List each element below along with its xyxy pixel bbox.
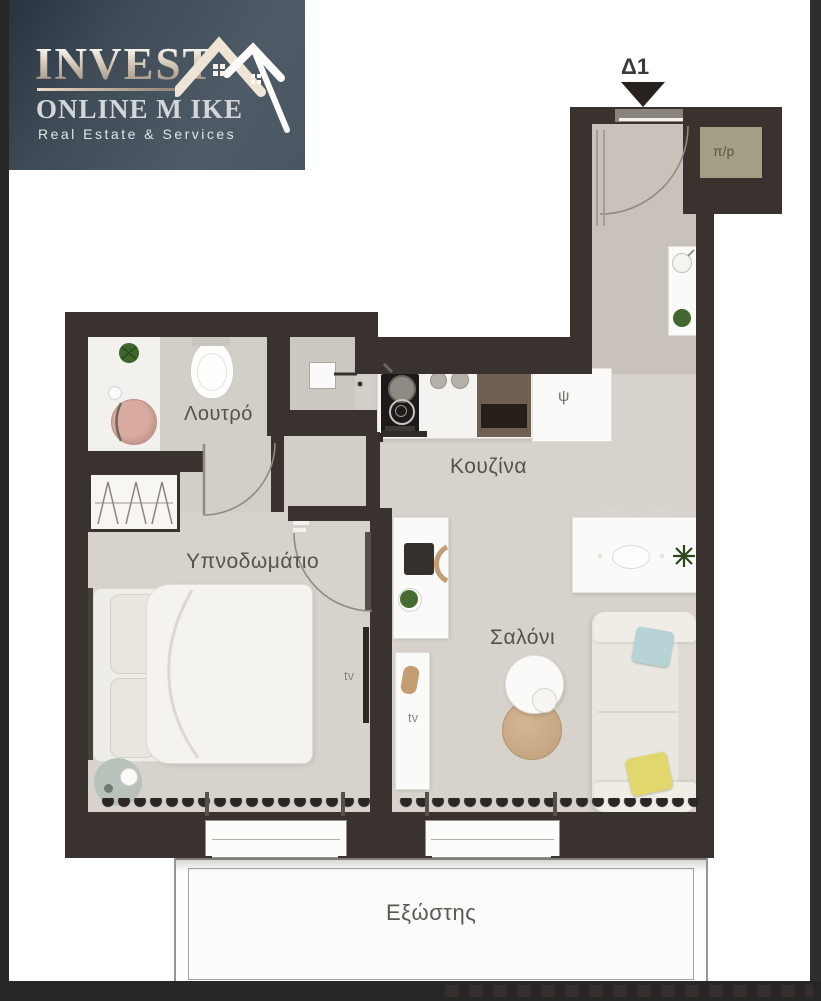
curtain-rod-end — [341, 792, 345, 816]
bedroom-tv-label: tv — [344, 668, 354, 683]
desk — [393, 517, 449, 639]
left-edge-strip — [0, 0, 9, 1001]
kitchen-label: Κουζίνα — [450, 455, 527, 479]
curtain-rod-end — [205, 792, 209, 816]
bedroom-label: Υπνοδωμάτιο — [186, 550, 319, 574]
wall-bottom-exterior — [65, 812, 714, 858]
living-room-label: Σαλόνι — [490, 626, 555, 650]
entrance-arrow-icon — [621, 82, 665, 107]
bedroom-door-jamb — [293, 528, 306, 532]
bedroom-door-jamb — [293, 521, 309, 525]
curtain-rod-end — [553, 792, 557, 816]
counter-handle-bar — [381, 431, 427, 437]
wall-hall-left — [570, 107, 592, 370]
right-edge-strip — [810, 0, 821, 1001]
bathroom-sink — [111, 399, 157, 445]
balcony-label: Εξώστης — [386, 900, 476, 926]
sofa-backrest — [678, 620, 696, 804]
toilet-bowl-inner — [197, 353, 227, 391]
wall-nook-top — [267, 410, 377, 436]
bedroom-tv — [363, 627, 369, 723]
hall-console-kettle — [672, 253, 692, 273]
logo-tagline: Real Estate & Services — [38, 126, 236, 142]
wall-nook-right — [366, 432, 380, 512]
laptop — [404, 543, 434, 575]
wardrobe — [88, 472, 180, 532]
soap-dish — [108, 386, 122, 400]
floor-plan-page: Λουτρό Κουζίνα Υπνοδωμάτιο Σαλόνι Εξώστη… — [0, 0, 821, 1001]
wall-kitchen-top — [355, 337, 592, 374]
desk-plant-pot — [398, 588, 422, 612]
bathroom-label: Λουτρό — [184, 403, 253, 426]
wall-right-exterior — [696, 210, 714, 830]
living-curtain — [398, 798, 698, 814]
fridge-cabinet — [532, 368, 612, 442]
bedroom-balcony-door — [205, 820, 347, 858]
wall-bath-lobby-separator — [88, 451, 203, 472]
dining-plate — [612, 545, 650, 569]
closet-label: π/p — [713, 143, 734, 159]
wall-lobby-left — [271, 436, 284, 512]
bedroom-door-leaf — [365, 532, 371, 610]
balcony-shadow — [176, 858, 706, 872]
living-tv-label: tv — [408, 710, 418, 725]
toilet-tank — [192, 337, 230, 346]
bedside-rug-item-dark — [104, 784, 113, 793]
living-balcony-door — [425, 820, 560, 858]
footer-watermark — [445, 985, 813, 997]
sofa-pillow-blue — [631, 626, 675, 668]
coffee-table-tray — [532, 688, 557, 713]
entrance-door-slab — [619, 118, 684, 121]
bedroom-curtain — [100, 798, 372, 814]
logo-subtitle: ONLINE M IKE — [36, 94, 243, 125]
fridge-label: ψ — [558, 388, 569, 406]
agency-logo: INVEST ONLINE M IKE Real Estate & Servic… — [9, 0, 305, 170]
counter-drain — [430, 372, 447, 389]
wall-bedroom-door-lintel — [288, 506, 372, 521]
shower-head — [309, 362, 336, 389]
wall-left-exterior — [65, 312, 88, 858]
bed-duvet — [146, 584, 313, 764]
bedside-rug-item — [120, 768, 138, 786]
unit-label: Δ1 — [621, 54, 649, 80]
kitchen-walnut-inset — [481, 404, 527, 428]
wall-bedroom-living-divider — [370, 508, 392, 830]
logo-underline — [37, 88, 183, 91]
wall-bathroom-top — [65, 312, 378, 337]
curtain-rod-end — [425, 792, 429, 816]
stove-burner-inner — [395, 405, 407, 417]
